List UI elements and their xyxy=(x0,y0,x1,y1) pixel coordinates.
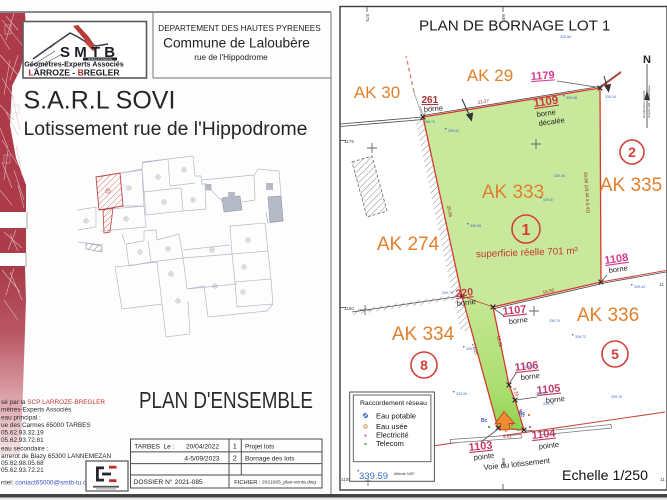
svg-text:339.57: 339.57 xyxy=(543,198,554,202)
svg-text:575: 575 xyxy=(365,14,370,22)
svg-text:339.70: 339.70 xyxy=(543,402,554,406)
svg-text:DEPARTEMENT DES HAUTES PYRENEE: DEPARTEMENT DES HAUTES PYRENEES xyxy=(158,24,321,33)
svg-text:333.90: 333.90 xyxy=(456,392,467,396)
svg-text:Projet lots: Projet lots xyxy=(245,444,275,451)
svg-text:PLAN D'ENSEMBLE: PLAN D'ENSEMBLE xyxy=(139,388,313,413)
svg-text:05.62.93.72.81: 05.62.93.72.81 xyxy=(1,437,44,444)
svg-text:Bornage des lots: Bornage des lots xyxy=(245,455,295,462)
svg-text:2021065_plan-venta.dwg: 2021065_plan-venta.dwg xyxy=(262,480,316,486)
svg-text:339.93: 339.93 xyxy=(448,129,459,133)
svg-text:Lotissement rue de l'Hippodrom: Lotissement rue de l'Hippodrome xyxy=(24,118,308,140)
svg-text:2: 2 xyxy=(628,144,636,160)
svg-text:1179: 1179 xyxy=(530,69,555,83)
svg-text:2021-085: 2021-085 xyxy=(175,479,203,486)
svg-text:20/04/2022: 20/04/2022 xyxy=(186,444,219,451)
svg-text:1: 1 xyxy=(233,444,237,451)
svg-text:05.62.93.32.19: 05.62.93.32.19 xyxy=(1,430,44,437)
svg-text:Echelle 1/250: Echelle 1/250 xyxy=(562,468,648,484)
svg-text:TARBES: TARBES xyxy=(134,444,160,451)
svg-text:AK 336: AK 336 xyxy=(577,305,639,326)
svg-text:rue de l'Hippodrome: rue de l'Hippodrome xyxy=(194,53,268,62)
svg-text:339.84: 339.84 xyxy=(560,35,571,39)
svg-text:Altitude NGF: Altitude NGF xyxy=(394,472,415,476)
svg-text:05.62.98.05.68: 05.62.98.05.68 xyxy=(1,460,44,467)
svg-text:Commune de Laloubère: Commune de Laloubère xyxy=(163,36,310,51)
svg-text:5.01: 5.01 xyxy=(503,433,513,439)
svg-text:sé par la SCP LARROZE-BREGLER: sé par la SCP LARROZE-BREGLER xyxy=(1,399,105,406)
svg-text:339.94: 339.94 xyxy=(536,392,547,396)
svg-text:Bc: Bc xyxy=(481,418,488,424)
svg-text:AK 30: AK 30 xyxy=(354,83,400,102)
svg-text:339.59: 339.59 xyxy=(359,471,388,482)
svg-text:Le :: Le : xyxy=(164,444,175,451)
svg-text:2: 2 xyxy=(233,455,237,462)
svg-text:600: 600 xyxy=(501,14,506,22)
svg-text:11: 11 xyxy=(659,282,664,287)
svg-text:05.62.93.72.21: 05.62.93.72.21 xyxy=(1,467,44,474)
svg-text:4-5/09/2023: 4-5/09/2023 xyxy=(184,455,220,462)
svg-text:Eau potable: Eau potable xyxy=(376,412,416,421)
svg-text:339.58: 339.58 xyxy=(470,224,481,228)
svg-text:339.70: 339.70 xyxy=(549,319,560,323)
svg-text:339.78: 339.78 xyxy=(466,347,477,351)
svg-text:339.76: 339.76 xyxy=(611,395,622,399)
svg-text:FICHIER :: FICHIER : xyxy=(234,480,261,486)
svg-text:AK 334: AK 334 xyxy=(392,324,455,345)
svg-text:1175: 1175 xyxy=(344,139,354,144)
svg-text:LARROZE - BREGLER: LARROZE - BREGLER xyxy=(28,68,120,78)
svg-text:339.31: 339.31 xyxy=(524,365,535,369)
svg-text:306.70: 306.70 xyxy=(424,120,435,124)
svg-text:mètres-Experts Associés: mètres-Experts Associés xyxy=(1,407,71,414)
svg-text:arrerot de Blazy 65300 LANNEME: arrerot de Blazy 65300 LANNEMEZAN xyxy=(1,453,111,460)
svg-text:borne: borne xyxy=(423,103,443,114)
svg-text:d'après Réf. Magnétique: d'après Réf. Magnétique xyxy=(647,85,651,118)
svg-text:rriel: contact65000@smtb-tu.co: rriel: contact65000@smtb-tu.com xyxy=(1,480,95,487)
svg-text:AK 335: AK 335 xyxy=(600,175,662,196)
svg-text:DOSSIER N°: DOSSIER N° xyxy=(134,478,173,486)
svg-text:11: 11 xyxy=(660,477,665,482)
svg-text:339.76: 339.76 xyxy=(442,291,453,295)
svg-text:Nivellement rattaché: Nivellement rattaché xyxy=(642,90,646,118)
svg-text:339.34: 339.34 xyxy=(605,95,616,99)
svg-text:339.43: 339.43 xyxy=(634,285,645,289)
svg-text:AK 29: AK 29 xyxy=(467,66,513,85)
svg-text:eau principal :: eau principal : xyxy=(1,415,41,422)
svg-text:AK 333: AK 333 xyxy=(482,182,544,203)
svg-text:339.48: 339.48 xyxy=(566,96,577,100)
svg-text:339.45: 339.45 xyxy=(554,174,565,178)
svg-text:339.72: 339.72 xyxy=(575,335,586,339)
svg-text:8: 8 xyxy=(420,357,428,373)
svg-text:Bc: Bc xyxy=(519,411,526,417)
svg-text:AK 274: AK 274 xyxy=(377,234,440,255)
svg-text:S.A.R.L SOVI: S.A.R.L SOVI xyxy=(24,86,176,114)
svg-text:eau secondaire :: eau secondaire : xyxy=(1,446,48,453)
svg-text:Telecom: Telecom xyxy=(376,439,404,448)
svg-text:Raccordement réseau: Raccordement réseau xyxy=(360,400,427,407)
svg-text:5: 5 xyxy=(611,346,619,362)
svg-text:ue des Carmes 65000 TARBES: ue des Carmes 65000 TARBES xyxy=(1,422,91,429)
svg-text:1: 1 xyxy=(522,222,531,239)
svg-text:PLAN DE BORNAGE LOT 1: PLAN DE BORNAGE LOT 1 xyxy=(419,18,610,35)
